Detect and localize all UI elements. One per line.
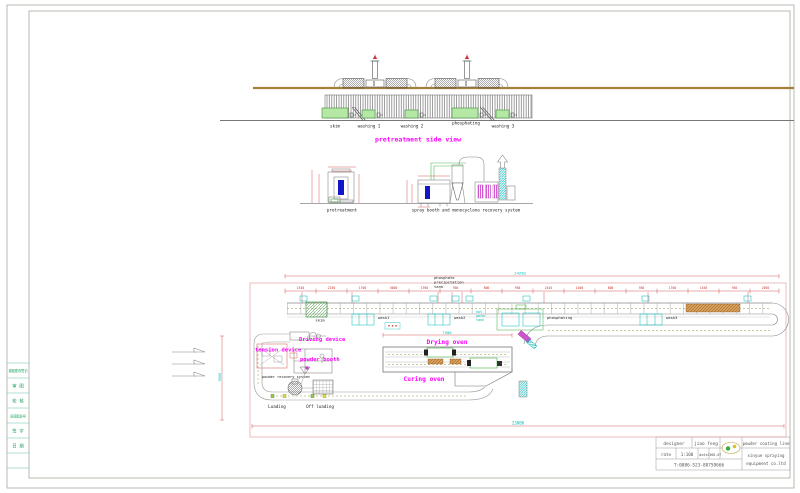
segment-dimension-labels: 1540225017003000195095080095024451400800… [285,286,779,293]
tank-label-washing3: washing 3 [492,124,515,129]
after-filter-unit [475,182,498,202]
company-name-line1: xinyue spraying [748,453,786,458]
wash3-tank-plan [640,314,662,325]
plan-view: 24250 1540225017003000195095080095024451… [172,271,789,438]
wash3-label: wash3 [666,315,677,320]
dim-segment-value: 3000 [390,286,398,290]
revision-row-label: 校 核 [12,398,24,405]
burner-unit-2 [467,358,502,368]
flow-arrows [172,348,205,376]
tank-label-washing2: washing 2 [401,124,424,129]
dim-segment-value: 1950 [421,286,429,290]
project-title: powder coating line [743,441,790,446]
recovery-filter [313,380,333,394]
tank-label-washing1: washing 1 [358,124,381,129]
dim-segment-value: 950 [515,286,521,290]
cad-drawing-sheet: 描图更改签记 审 图 校 核 旧底图总号 签 字 日 期 designer ji… [0,0,800,493]
burner-unit-1 [424,348,456,357]
dim-segment-value: 1400 [576,286,584,290]
wash1-label: wash1 [378,315,390,320]
tank-label-phosphating: phosphating [452,121,480,126]
phosphating-tank-plan [497,305,543,330]
left-dimension-line: 9000 [218,336,224,420]
revision-row-label: 日 期 [12,444,24,450]
roof-exhaust-unit [334,55,416,89]
skim-tank-label: skim [315,318,325,323]
extension-lines [302,292,748,303]
roof-exhaust-unit [426,55,508,89]
dim-segment-value: 2445 [545,286,553,290]
svg-text:tank: tank [434,284,444,289]
dim-segment-value: 1700 [359,286,367,290]
phone-number: T:0086-523-88759666 [674,463,725,469]
dim-segment-value: 1450 [700,286,708,290]
dim-segment-value: 800 [608,286,614,290]
designer-value: jiao feng [694,441,718,447]
dim-segment-value: 1700 [669,286,677,290]
heater-bank [686,304,740,312]
tank-label-skim: skim [330,124,341,129]
dim-segment-value: 1540 [297,286,305,290]
curing-oven-label: Curing oven [404,375,445,383]
scale-value: 1:100 [681,452,694,457]
date-value: 2005.07 [708,453,722,457]
powder-recovery-label: powder recovery system [262,375,310,379]
company-logo [722,443,740,454]
bottom-dimension-value: 23000 [512,421,525,426]
dim-segment-value: 2050 [762,286,770,290]
wash1-tank-plan [352,314,374,325]
revision-row-label: 旧底图总号 [10,414,26,419]
pretreatment-side-view: skim washing 1 washing 2 phosphating was… [220,55,794,144]
pretreatment-section-view: pretreatment [312,167,359,213]
powder-booth-label: powder booth [300,357,340,363]
svg-text:tank: tank [476,318,484,322]
title-block: designer jiao feng rate 1:100 date 2005.… [656,437,790,470]
booth-view-label: spray booth and monocyclone recovery sys… [412,208,521,213]
revision-row-label: 审 图 [12,383,24,390]
duct-green-piping [431,163,466,180]
spray-booth-recovery-view: spray booth and monocyclone recovery sys… [407,155,521,213]
dim-segment-value: 2250 [328,286,336,290]
front-views: pretreatment [300,155,533,213]
revision-row-label: 描图更改签记 [8,368,28,373]
designer-label: designer [663,441,685,447]
note-phosphate-tank: phosphate precipitation tank [434,275,464,289]
side-view-title: pretreatment side view [375,136,461,144]
skim-tank-plan [306,302,327,317]
oven-exit-curtain [519,381,527,397]
bottom-dimension-line: 23000 [252,421,784,429]
driving-device-label: Driving device [299,337,346,343]
oven-dimension-value: 7500 [442,330,452,335]
dim-segment-value: 950 [639,286,645,290]
sheet-frame: 描图更改签记 审 图 校 核 旧底图总号 签 字 日 期 [7,5,794,488]
wash2-tank-plan [428,314,450,325]
heat-exchanger-bar [428,359,443,364]
company-name-line2: equipment co.ltd [746,461,786,466]
drying-oven-label: Drying oven [427,338,468,346]
off-loading-label: Off loading [306,404,334,409]
heat-exchanger-bar [450,359,461,364]
oven-block: 7500 Drying oven Curing oven [383,330,527,397]
workpiece-profile [425,186,430,199]
scale-label: rate [661,452,672,457]
left-dimension-value: 9000 [218,373,222,382]
spray-booth-box [418,180,450,203]
revision-row-label: 签 字 [12,428,24,435]
drawing-canvas: 描图更改签记 审 图 校 核 旧底图总号 签 字 日 期 designer ji… [0,0,800,493]
date-label: date [699,453,708,457]
phosphating-label: phosphating [547,315,572,320]
dim-segment-value: 950 [453,286,459,290]
overall-dimension-value: 24250 [514,271,526,276]
dim-segment-value: 950 [732,286,738,290]
pretreatment-view-label: pretreatment [327,208,358,213]
circulation-pumps [300,296,751,301]
exhaust-stack [498,155,516,200]
dim-segment-value: 800 [484,286,490,290]
loading-label: Loading [268,404,286,409]
wash2-label: wash2 [454,315,465,320]
workpiece-profile [338,180,344,195]
tension-device-label: tension device [255,348,302,354]
